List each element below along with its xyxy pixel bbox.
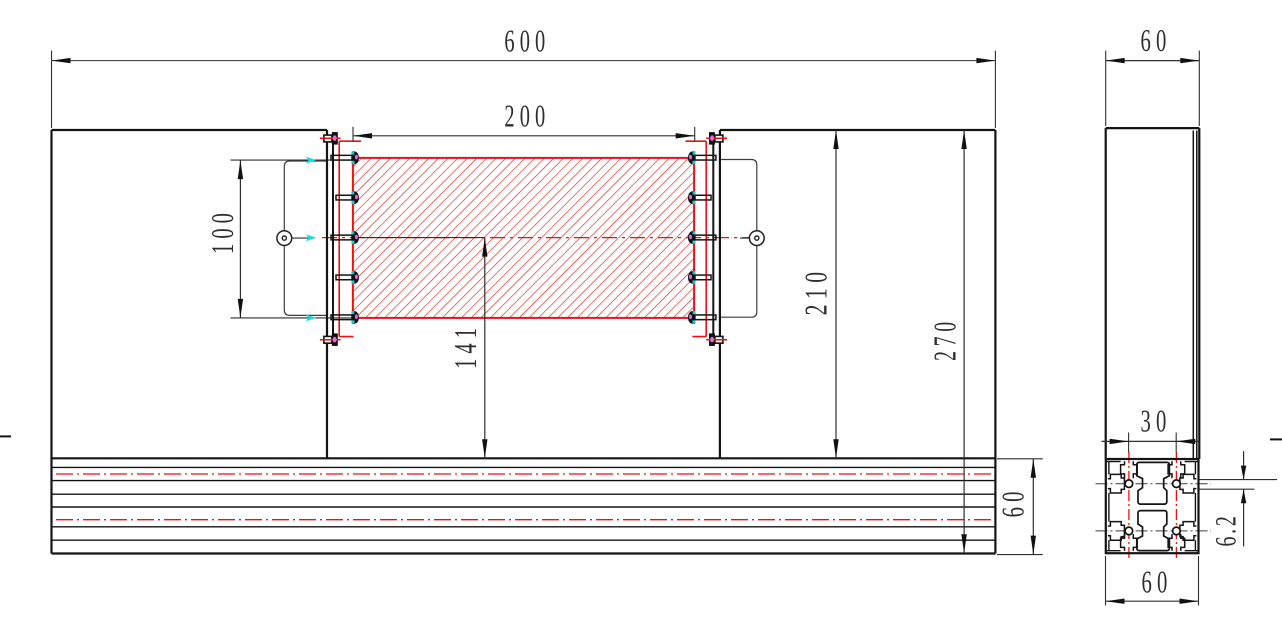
svg-text:100: 100	[204, 208, 240, 254]
svg-text:60: 60	[1142, 563, 1173, 599]
svg-text:6.2: 6.2	[1209, 514, 1242, 547]
svg-text:60: 60	[995, 486, 1031, 517]
svg-text:600: 600	[504, 23, 550, 59]
svg-text:270: 270	[926, 317, 962, 361]
svg-text:210: 210	[798, 266, 834, 315]
svg-text:60: 60	[1141, 22, 1172, 58]
svg-text:30: 30	[1141, 403, 1172, 439]
svg-text:141: 141	[447, 323, 483, 369]
svg-text:200: 200	[504, 97, 550, 133]
